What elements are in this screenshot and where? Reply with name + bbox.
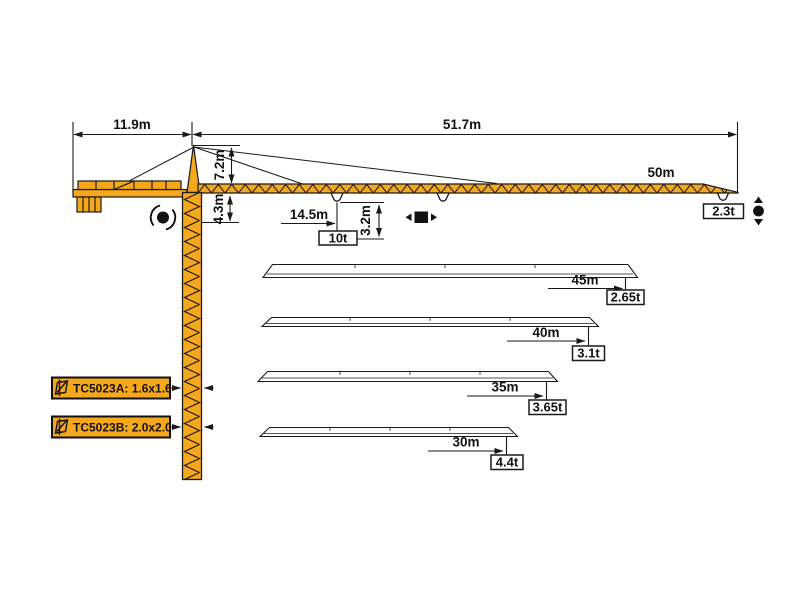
trolley-arrow-left <box>406 214 412 222</box>
hoisting-icon <box>753 197 764 226</box>
jib-40-length-label: 40m <box>532 325 559 340</box>
mast-section-a-label: TC5023A: 1.6x1.6 <box>73 382 172 396</box>
counter-jib-length-label: 11.9m <box>113 117 151 132</box>
jib-35-load-value: 3.65t <box>533 400 563 415</box>
tip-load-value: 2.3t <box>712 204 735 219</box>
mast-section-b-label: TC5023B: 2.0x2.0 <box>73 421 172 435</box>
mid-load-value: 10t <box>329 231 348 246</box>
crane-spec-drawing: 11.9m 51.7m 7.2m 4.3m <box>0 0 800 600</box>
crane-diagram-svg: 11.9m 51.7m 7.2m 4.3m <box>0 0 800 600</box>
jib-45-load-value: 2.65t <box>611 290 641 305</box>
jib-35-length-label: 35m <box>491 380 518 395</box>
slewing-icon <box>148 204 178 232</box>
hoist-arrow-down <box>754 219 763 226</box>
counter-jib <box>73 181 187 212</box>
hook-drop-label: 3.2m <box>358 205 373 236</box>
trolley-arrow-right <box>431 214 437 222</box>
jib-variant-35m <box>258 372 566 415</box>
main-jib <box>198 184 738 193</box>
jib-30-load-value: 4.4t <box>496 455 519 470</box>
counter-jib-beam <box>73 190 187 198</box>
hoist-dot <box>753 206 764 217</box>
load-radius-label: 14.5m <box>290 207 328 222</box>
jib-variant-30m <box>260 428 523 470</box>
hoist-arrow-up <box>754 197 763 204</box>
trolley-square <box>415 212 429 224</box>
main-jib-lattice <box>198 184 738 193</box>
slewing-dot <box>155 210 170 225</box>
hook-second <box>437 193 449 201</box>
tower-mast <box>183 193 202 480</box>
under-jib-height-label: 4.3m <box>211 194 226 225</box>
pendant-jib-2 <box>194 147 497 184</box>
jib-40-load-value: 3.1t <box>577 346 600 361</box>
hook-tip <box>718 193 729 200</box>
working-span-label: 51.7m <box>443 117 481 132</box>
jib-length-label: 50m <box>647 165 674 180</box>
jib-45-length-label: 45m <box>571 273 598 288</box>
jib-30-length-label: 30m <box>452 435 479 450</box>
apex-height-label: 7.2m <box>212 150 227 181</box>
trolley-travel-icon <box>406 212 438 224</box>
pendant-jib-1 <box>194 147 304 185</box>
hook-mid <box>331 193 343 201</box>
mast-lattice <box>183 193 202 480</box>
